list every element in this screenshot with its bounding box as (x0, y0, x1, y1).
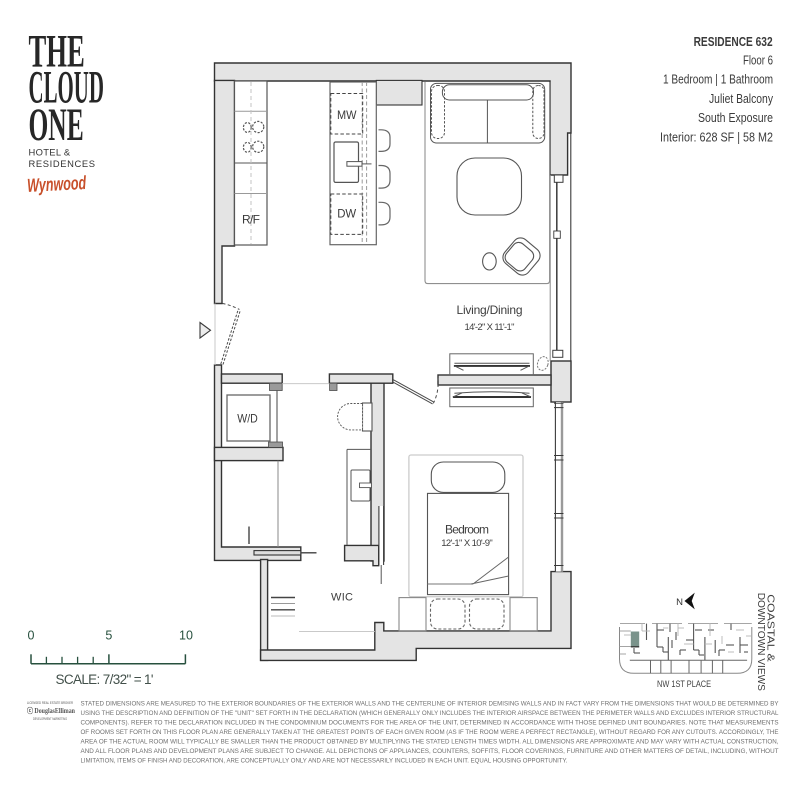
svg-text:South Exposure: South Exposure (698, 111, 773, 125)
svg-text:USING THE DESCRIPTION AND DEFI: USING THE DESCRIPTION AND DEFINITION OF … (81, 710, 779, 717)
svg-text:R/F: R/F (242, 213, 260, 227)
svg-text:Interior: 628 SF | 58 M2: Interior: 628 SF | 58 M2 (660, 130, 773, 144)
svg-text:5: 5 (105, 629, 112, 643)
svg-text:LICENSED REAL ESTATE BROKER: LICENSED REAL ESTATE BROKER (27, 701, 74, 705)
svg-text:COMPONENTS). REFER TO THE DECL: COMPONENTS). REFER TO THE DECLARATION IN… (81, 720, 780, 727)
svg-text:0: 0 (28, 629, 35, 643)
svg-text:DW: DW (337, 207, 357, 221)
svg-text:HOTEL &: HOTEL & (29, 147, 71, 158)
svg-text:DEVELOPMENT MARKETING: DEVELOPMENT MARKETING (33, 716, 67, 721)
svg-text:ⓒ DouglasElliman: ⓒ DouglasElliman (27, 706, 75, 715)
svg-text:N: N (676, 597, 683, 608)
svg-text:Floor 6: Floor 6 (743, 54, 773, 68)
svg-text:W/D: W/D (237, 412, 258, 426)
svg-text:10: 10 (179, 629, 193, 643)
svg-text:Living/Dining: Living/Dining (457, 303, 523, 317)
svg-text:12'-1" X 10'-9": 12'-1" X 10'-9" (441, 538, 493, 549)
svg-text:ONE: ONE (29, 99, 84, 151)
svg-text:1 Bedroom | 1 Bathroom: 1 Bedroom | 1 Bathroom (663, 73, 773, 87)
svg-text:AND ALL FLOOR PLANS AND DEVELO: AND ALL FLOOR PLANS AND DEVELOPMENT PLAN… (81, 748, 779, 755)
svg-text:MW: MW (337, 108, 357, 122)
svg-text:AREA OF THE ACTUAL ROOM WILL T: AREA OF THE ACTUAL ROOM WILL TYPICALLY B… (81, 739, 779, 746)
svg-text:Wynwood: Wynwood (27, 173, 87, 197)
svg-text:DOWNTOWN VIEWS: DOWNTOWN VIEWS (755, 593, 766, 692)
svg-text:RESIDENCES: RESIDENCES (29, 158, 96, 169)
svg-text:OF ROOMS SET FORTH ON THIS FLO: OF ROOMS SET FORTH ON THIS FLOOR PLAN AR… (81, 729, 780, 736)
svg-text:NW 1ST PLACE: NW 1ST PLACE (657, 679, 711, 690)
svg-text:14'-2" X 11'-1": 14'-2" X 11'-1" (465, 322, 515, 333)
svg-text:WIC: WIC (331, 592, 353, 604)
svg-text:LIMITATION, ITEMS OF FINISH AN: LIMITATION, ITEMS OF FINISH AND DECORATI… (81, 758, 568, 765)
svg-text:Bedroom: Bedroom (445, 523, 489, 537)
svg-text:RESIDENCE 632: RESIDENCE 632 (694, 34, 773, 49)
svg-text:Juliet Balcony: Juliet Balcony (709, 92, 774, 106)
svg-text:STATED DIMENSIONS ARE MEASURED: STATED DIMENSIONS ARE MEASURED TO THE EX… (81, 701, 780, 708)
svg-text:SCALE: 7/32" = 1': SCALE: 7/32" = 1' (56, 672, 154, 687)
